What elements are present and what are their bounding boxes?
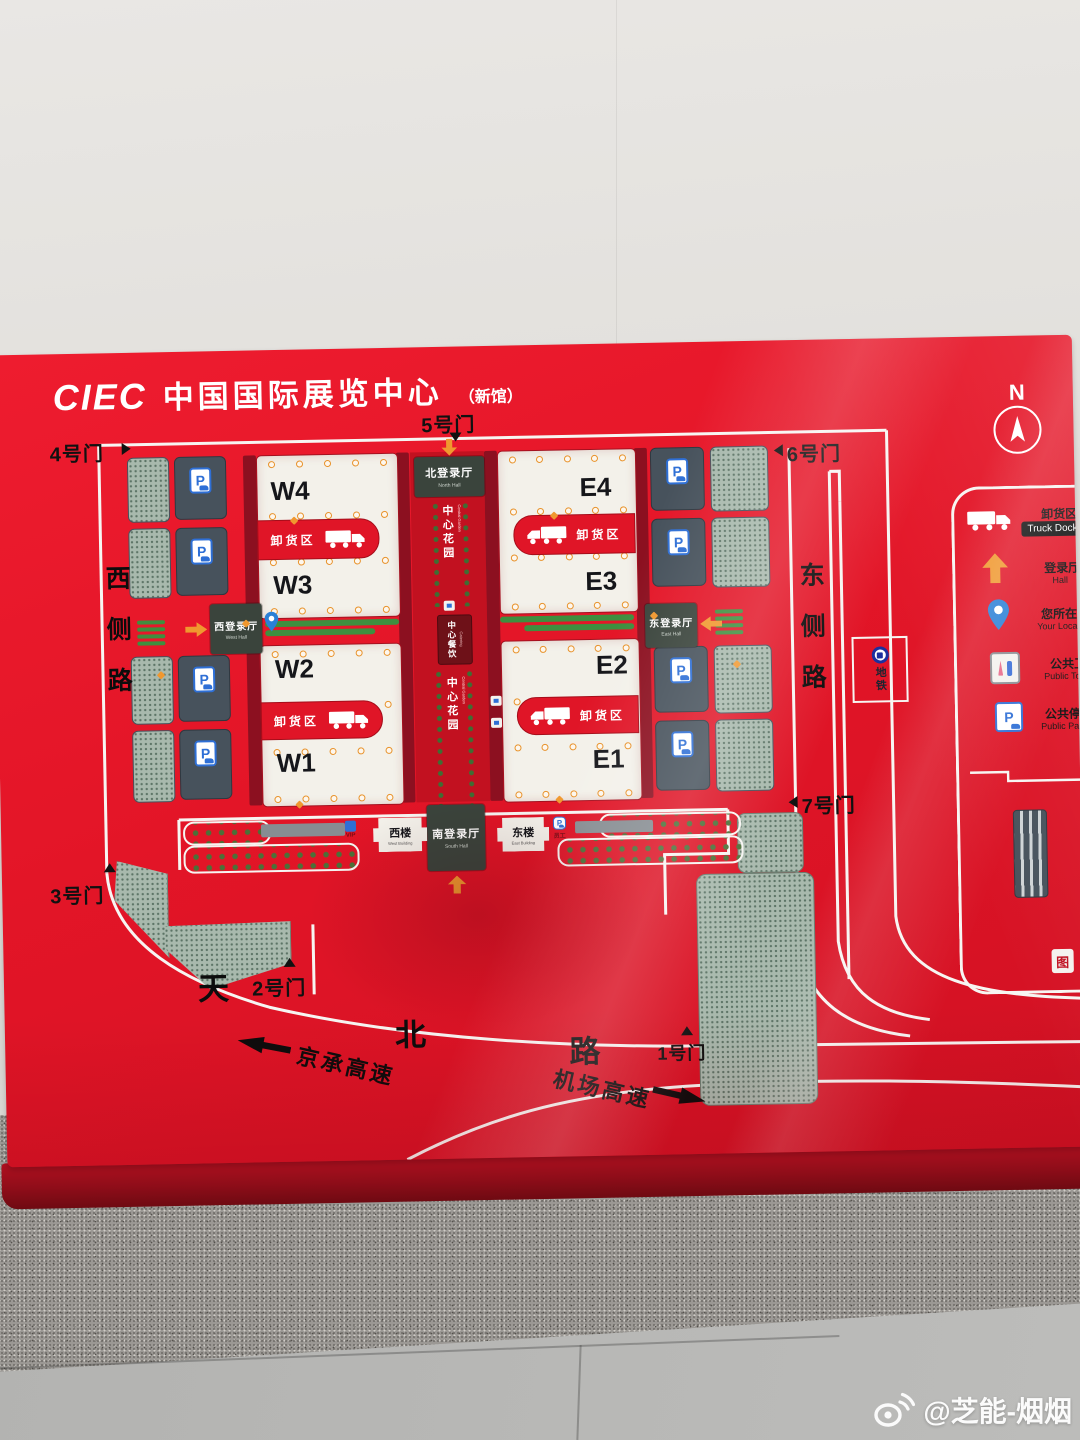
- central-garden-upper: 中心花园 Central Garden: [439, 504, 464, 604]
- green-area: [696, 872, 818, 1106]
- central-catering: 中心餐饮 Catering: [437, 614, 473, 665]
- hall-label-e4: E4: [579, 472, 611, 504]
- restroom-mini-icon: [491, 696, 502, 706]
- hall-label-e3: E3: [585, 565, 617, 597]
- legend-hall-zh: 登录厅: [1044, 559, 1080, 577]
- hall-door-marker: [299, 607, 306, 614]
- parking-icon: P: [194, 740, 216, 766]
- parking-area: [711, 517, 770, 588]
- vip-tree-row: [183, 820, 271, 846]
- parking-icon: P: [666, 458, 688, 484]
- truck-icon: [329, 709, 369, 730]
- west-entrance-zh: 西登录厅: [214, 617, 258, 633]
- hall-door-marker: [625, 789, 632, 796]
- parking-icon: P: [190, 538, 212, 564]
- parking-icon: P: [189, 467, 211, 493]
- truck-dock-label: 卸货区: [580, 706, 625, 724]
- parking-area: [131, 656, 174, 725]
- hall-door-marker: [384, 649, 391, 656]
- east-side-road-label: 东侧路: [792, 561, 831, 715]
- gate-6-label: 6号门: [787, 437, 842, 467]
- location-pin-icon: [987, 598, 1011, 631]
- hedge-row: [715, 609, 743, 614]
- legend-parking-zh: 公共停车场: [1045, 704, 1080, 722]
- gate-2-marker: [284, 958, 296, 967]
- gate-7-label: 7号门: [801, 789, 856, 819]
- hall-door-marker: [327, 607, 334, 614]
- hall-door-marker: [513, 646, 520, 653]
- south-entrance-en: South Hall: [445, 843, 468, 849]
- hall-label-w4: W4: [270, 475, 310, 507]
- gate-2-label: 2号门: [252, 972, 307, 1002]
- hall-door-marker: [387, 794, 394, 801]
- parking-area: [710, 446, 769, 512]
- hall-door-marker: [268, 461, 275, 468]
- garden-label-zh: 中心花园: [439, 505, 457, 605]
- male-figure-icon: [1007, 660, 1012, 675]
- hall-door-marker: [539, 603, 546, 610]
- venue-name: 中国国际展览中心: [162, 367, 443, 417]
- restroom-mini-icon: [491, 718, 502, 728]
- parking-lot: P: [175, 527, 228, 596]
- hedge-row: [137, 634, 165, 639]
- hall-door-marker: [380, 459, 387, 466]
- info-icon: [444, 601, 455, 611]
- legend-location-zh: 您所在位置: [1041, 604, 1080, 622]
- east-building: 东楼 East Building: [497, 817, 550, 852]
- gate-6-marker: [774, 444, 783, 456]
- parking-icon: P: [670, 657, 692, 683]
- legend-truck-en: Truck Dock: [1021, 521, 1080, 537]
- truck-dock-west-lower: 卸货区: [261, 700, 384, 740]
- gate-1-label: 1号门: [657, 1039, 707, 1066]
- parking-area: [132, 730, 175, 803]
- truck-icon: [526, 524, 566, 545]
- south-entrance-zh: 南登录厅: [432, 825, 480, 842]
- hall-door-marker: [386, 747, 393, 754]
- east-building-en: East Building: [512, 840, 535, 845]
- hall-label-e1: E1: [592, 743, 624, 775]
- hall-label-w1: W1: [276, 747, 316, 779]
- hedge-row: [137, 620, 165, 625]
- hall-label-e2: E2: [596, 649, 628, 681]
- truck-icon: [325, 528, 365, 549]
- parking-lot: P: [650, 447, 705, 511]
- parking-icon: P: [667, 529, 689, 555]
- hall-label-w2: W2: [275, 653, 315, 685]
- parking-lot: P: [651, 518, 706, 587]
- venue-name-suffix: （新馆）: [459, 382, 523, 407]
- parking-icon: P: [995, 702, 1024, 733]
- hedge-row: [137, 641, 165, 646]
- west-entrance-hall: 西登录厅 West Hall: [210, 603, 263, 654]
- board-face: CIEC 中国国际展览中心 （新馆） N 卸货区: [0, 335, 1080, 1168]
- hall-door-marker: [543, 791, 550, 798]
- metro-icon: [871, 646, 888, 663]
- compass-icon: [993, 405, 1042, 454]
- hall-door-marker: [621, 601, 628, 608]
- hall-door-marker: [383, 606, 390, 613]
- east-entrance-en: East Hall: [661, 631, 681, 637]
- compass-label: N: [1009, 380, 1025, 406]
- gate-7-marker: [788, 796, 797, 808]
- hall-door-marker: [569, 743, 576, 750]
- hall-door-marker: [618, 454, 625, 461]
- toilet-icon: [990, 652, 1021, 685]
- catering-label-zh: 中心餐饮: [446, 621, 459, 659]
- hall-door-marker: [296, 460, 303, 467]
- vip-icon: [345, 821, 356, 832]
- hall-door-marker: [564, 455, 571, 462]
- hedge-row: [715, 616, 743, 621]
- hall-door-marker: [514, 744, 521, 751]
- legend-parking-en: Public Parking: [1041, 720, 1080, 731]
- west-building-en: West Building: [388, 840, 412, 845]
- garden-label-zh: 中心花园: [443, 677, 461, 801]
- gate-1-marker: [681, 1026, 693, 1035]
- metro-station: 地铁: [851, 636, 908, 703]
- hedge-row: [715, 630, 743, 635]
- watermark-handle: @芝能-烟烟: [923, 1390, 1072, 1430]
- hall-door-marker: [358, 747, 365, 754]
- hall-door-marker: [591, 455, 598, 462]
- staff-parking-icon: P: [553, 817, 566, 830]
- hall-door-marker: [356, 649, 363, 656]
- staff-parking-badge: P 员工: [553, 817, 566, 840]
- central-garden-lower: 中心花园 Central Garden: [443, 676, 468, 800]
- ciec-abbr: CIEC: [52, 375, 147, 419]
- metro-label: 地铁: [872, 666, 888, 692]
- hall-door-marker: [515, 791, 522, 798]
- legend-hall-en: Hall: [1052, 575, 1068, 585]
- parking-icon: P: [193, 666, 215, 692]
- parking-lot: P: [655, 720, 710, 791]
- west-side-road-label: 西侧路: [98, 565, 137, 719]
- photo-scene: CIEC 中国国际展览中心 （新馆） N 卸货区: [0, 0, 1080, 1440]
- hall-label-w3: W3: [273, 569, 313, 601]
- tianbei-road-char: 北: [395, 1009, 427, 1055]
- hall-door-marker: [511, 554, 518, 561]
- map-board: CIEC 中国国际展览中心 （新馆） N 卸货区: [0, 331, 1080, 1216]
- east-entrance-hall: 东登录厅 East Hall: [645, 603, 698, 648]
- gate-4-marker: [122, 443, 131, 455]
- hall-door-marker: [509, 456, 516, 463]
- parking-lot: P: [178, 655, 231, 722]
- weibo-icon: [873, 1392, 915, 1428]
- hall-door-marker: [542, 744, 549, 751]
- vip-tree-row: [183, 842, 360, 873]
- hall-door-marker: [540, 646, 547, 653]
- hedge-row: [137, 627, 165, 632]
- north-entrance-en: North Hall: [438, 482, 460, 488]
- hall-door-marker: [624, 742, 631, 749]
- hall-door-marker: [324, 460, 331, 467]
- female-figure-icon: [998, 661, 1003, 676]
- parking-area: [715, 719, 774, 792]
- legend-toilet-zh: 公共卫生间: [1050, 654, 1080, 672]
- parking-lot: P: [654, 646, 709, 713]
- hall-door-marker: [352, 459, 359, 466]
- parking-lot: P: [174, 456, 227, 520]
- vip-canopy: [575, 820, 653, 833]
- staff-label: 员工: [554, 831, 566, 840]
- parking-area: [128, 528, 171, 599]
- tianbei-road-char: 天: [198, 963, 230, 1009]
- vip-tree-row: [557, 835, 744, 867]
- east-building-zh: 东楼: [512, 824, 534, 840]
- truck-dock-label: 卸货区: [270, 531, 315, 549]
- hall-door-marker: [355, 606, 362, 613]
- hall-door-marker: [512, 603, 519, 610]
- west-building: 西楼 West Building: [373, 817, 428, 852]
- hall-door-marker: [331, 795, 338, 802]
- hall-door-marker: [570, 790, 577, 797]
- gate-3-marker: [104, 863, 116, 872]
- west-entrance-en: West Hall: [226, 634, 247, 640]
- hall-door-marker: [510, 508, 517, 515]
- truck-dock-east-lower: 卸货区: [517, 695, 640, 735]
- hall-door-marker: [328, 650, 335, 657]
- truck-dock-label: 卸货区: [274, 712, 319, 730]
- map-seal: 图: [1051, 949, 1073, 973]
- gate-4-label: 4号门: [49, 437, 104, 467]
- hall-door-marker: [330, 748, 337, 755]
- hall-door-marker: [567, 645, 574, 652]
- gate-3-label: 3号门: [50, 879, 105, 909]
- hall-door-marker: [536, 456, 543, 463]
- north-entrance-zh: 北登录厅: [425, 464, 473, 481]
- truck-dock-label: 卸货区: [576, 525, 621, 543]
- truck-icon: [530, 705, 570, 726]
- vip-canopy: [261, 823, 345, 838]
- green-area: [737, 812, 804, 873]
- hall-door-marker: [275, 796, 282, 803]
- truck-dock-east-upper: 卸货区: [513, 513, 636, 555]
- hall-door-marker: [385, 701, 392, 708]
- hall-door-marker: [359, 794, 366, 801]
- hall-door-marker: [566, 602, 573, 609]
- hall-door-marker: [594, 602, 601, 609]
- truck-icon: [967, 508, 1011, 533]
- vip-badge: VIP: [345, 821, 356, 839]
- catering-label-en: Catering: [459, 632, 464, 647]
- legend-truck-zh: 卸货区: [1041, 505, 1077, 523]
- north-compass: N: [993, 379, 1042, 454]
- west-building-zh: 西楼: [389, 824, 411, 840]
- truck-dock-west-upper: 卸货区: [257, 518, 380, 560]
- watermark: @芝能-烟烟: [873, 1390, 1072, 1430]
- vip-label: VIP: [346, 833, 356, 839]
- legend-location-en: Your Location: [1037, 620, 1080, 631]
- parking-lot: P: [179, 729, 232, 800]
- parking-area: [714, 645, 773, 714]
- hall-door-marker: [381, 511, 388, 518]
- gate-5-label: 5号门: [421, 408, 476, 438]
- hall-door-marker: [382, 557, 389, 564]
- parking-area: [127, 457, 170, 523]
- south-entrance-hall: 南登录厅 South Hall: [427, 804, 486, 871]
- hall-door-marker: [303, 795, 310, 802]
- hall-door-marker: [597, 790, 604, 797]
- wall-seam: [616, 0, 617, 345]
- parking-icon: P: [671, 731, 693, 757]
- location-pin-icon: [264, 611, 279, 632]
- legend-toilet-en: Public Toilet: [1044, 670, 1080, 681]
- north-entrance-hall: 北登录厅 North Hall: [414, 456, 485, 497]
